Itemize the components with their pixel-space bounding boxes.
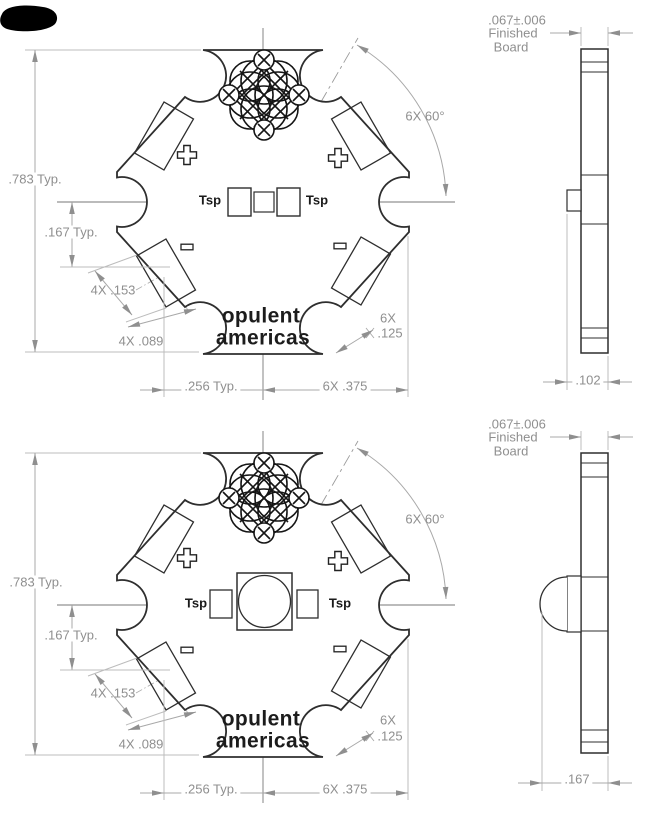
dim-notch-count-label: 6X <box>380 714 396 727</box>
thickness-note-line3: Board <box>494 444 529 458</box>
drawing-canvas: .783 Typ. .167 Typ. 4X .153 4X .089 .256… <box>0 0 663 821</box>
center-pad-left <box>210 590 232 618</box>
dim-pad-length-label: 4X .153 <box>91 687 136 700</box>
top-profile-view <box>543 27 633 390</box>
tsp-label-right: Tsp <box>329 597 351 610</box>
dim-height-label: .783 Typ. <box>6 576 65 589</box>
center-pad-left <box>228 188 251 216</box>
thickness-note-line2: Finished <box>488 26 537 40</box>
logo-line1: opulent <box>222 310 301 323</box>
tsp-label-right: Tsp <box>306 194 328 207</box>
dim-point-spacing-label: 6X .375 <box>320 380 371 393</box>
bottom-profile-view <box>518 431 633 791</box>
dim-pad-width-label: 4X .089 <box>119 335 164 348</box>
dim-pitch-label: .256 Typ. <box>181 783 240 796</box>
led-lens <box>239 576 291 628</box>
profile-board <box>581 49 608 353</box>
dim-overall-thickness-label: .167 <box>561 773 592 786</box>
tsp-label-left: Tsp <box>199 194 221 207</box>
profile-solder-tab <box>567 190 581 211</box>
dim-notch-radius-label: .125 <box>377 730 402 743</box>
dim-height-label: .783 Typ. <box>5 173 64 186</box>
dim-pad-width-label: 4X .089 <box>119 738 164 751</box>
dim-notch-count-label: 6X <box>380 312 396 325</box>
dim-angle-label: 6X 60° <box>405 110 444 123</box>
dim-angle-label: 6X 60° <box>405 513 444 526</box>
tsp-label-left: Tsp <box>185 597 207 610</box>
center-pad-right <box>297 590 318 618</box>
thickness-note-line3: Board <box>494 40 529 54</box>
dim-point-spacing-label: 6X .375 <box>320 783 371 796</box>
profile-board <box>581 453 608 753</box>
thickness-note-line2: Finished <box>488 430 537 444</box>
dim-notch-radius-label: .125 <box>377 327 402 340</box>
logo-line1: opulent <box>222 713 301 726</box>
profile-led-pedestal <box>567 576 581 632</box>
top-center-pads <box>228 188 300 216</box>
profile-led-dome <box>540 577 567 631</box>
center-pad-right <box>277 188 300 216</box>
logo-line2: americas <box>216 332 310 345</box>
dim-pitch-label: .256 Typ. <box>181 380 240 393</box>
dim-center-offset-label: .167 Typ. <box>41 226 100 239</box>
marker-scribble <box>0 5 57 31</box>
dim-pad-length-label: 4X .153 <box>91 284 136 297</box>
dim-center-offset-label: .167 Typ. <box>41 629 100 642</box>
dim-overall-thickness-label: .102 <box>572 374 603 387</box>
logo-line2: americas <box>216 735 310 748</box>
center-thermal-pad <box>254 192 274 212</box>
